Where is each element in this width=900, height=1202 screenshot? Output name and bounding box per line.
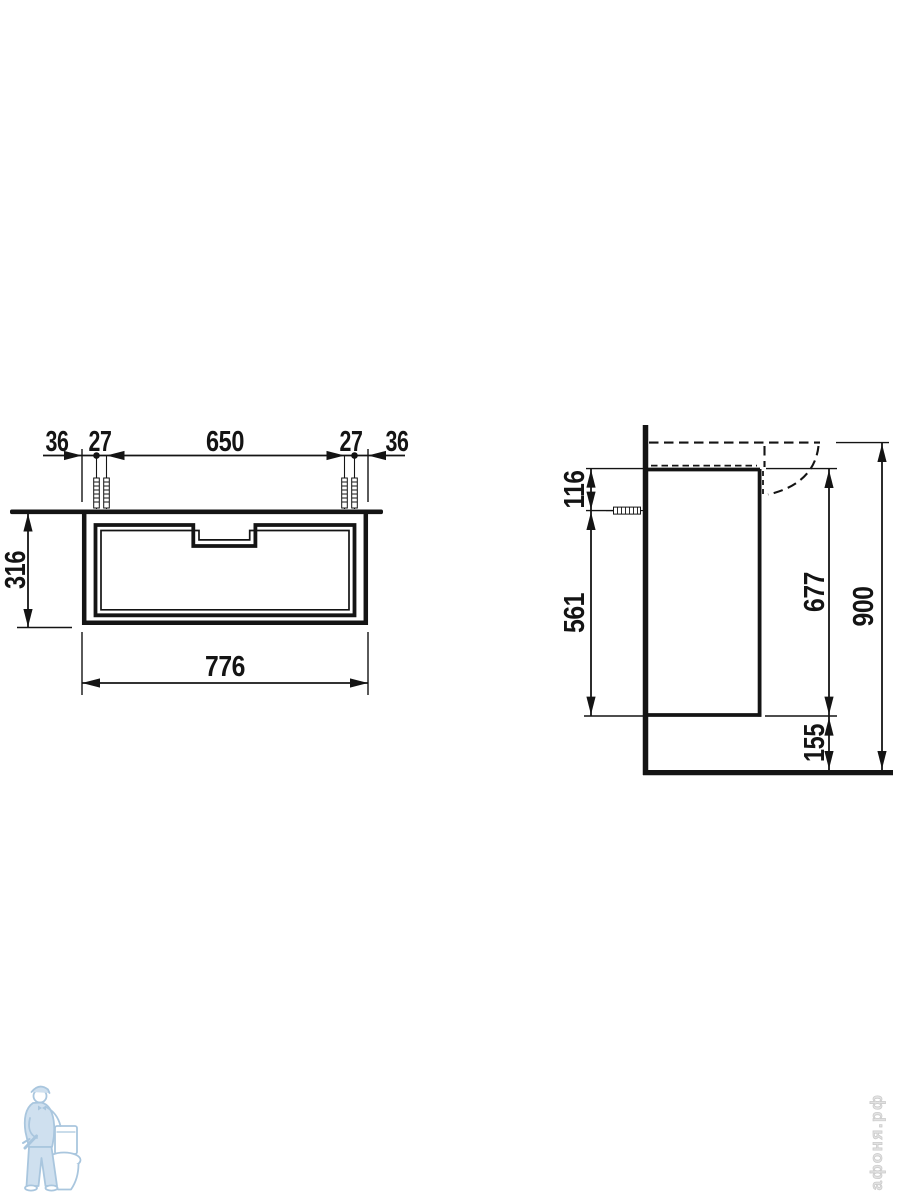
- dim-front-gap-right: 36: [386, 426, 409, 458]
- dim-side-fixing-to-bottom: 561: [559, 593, 591, 633]
- dim-side-top-to-fixing: 116: [559, 470, 591, 508]
- dim-front-pitch-right: 27: [340, 426, 363, 458]
- dim-side-floor-clearance: 155: [799, 724, 831, 762]
- drawer-front-outline: [96, 525, 355, 615]
- handle-recess-inner-line: [101, 531, 349, 610]
- dowel-icon: [614, 507, 641, 514]
- dim-front-gap-left: 36: [46, 426, 69, 458]
- dim-side-cabinet-height: 677: [799, 572, 831, 612]
- side-view: 116 561 677 155 900: [559, 425, 893, 775]
- wall-plug-dowels-front: [94, 478, 358, 508]
- dowel-icon: [104, 478, 110, 508]
- site-watermark-text: афоня.рф: [866, 1082, 888, 1202]
- dowel-icon: [94, 478, 100, 508]
- front-view: 36 27 650 27 36 316 776: [0, 426, 409, 695]
- side-extension-lines: [584, 443, 889, 716]
- dim-front-pitch-left: 27: [89, 426, 112, 458]
- plumber-logo-watermark: [23, 1087, 81, 1191]
- dim-front-width: 776: [205, 651, 245, 683]
- countertop-front: [10, 510, 383, 515]
- dim-side-total-height: 900: [848, 587, 880, 627]
- technical-drawing: 36 27 650 27 36 316 776: [0, 0, 900, 1200]
- screw-centerlines: [97, 456, 355, 510]
- dim-front-span-center: 650: [206, 426, 244, 458]
- dowel-icon: [342, 478, 348, 508]
- dim-front-height: 316: [0, 551, 32, 589]
- side-dimension-arrows: [586, 444, 886, 769]
- dowel-icon: [352, 478, 358, 508]
- side-dimension-lines: [591, 443, 882, 770]
